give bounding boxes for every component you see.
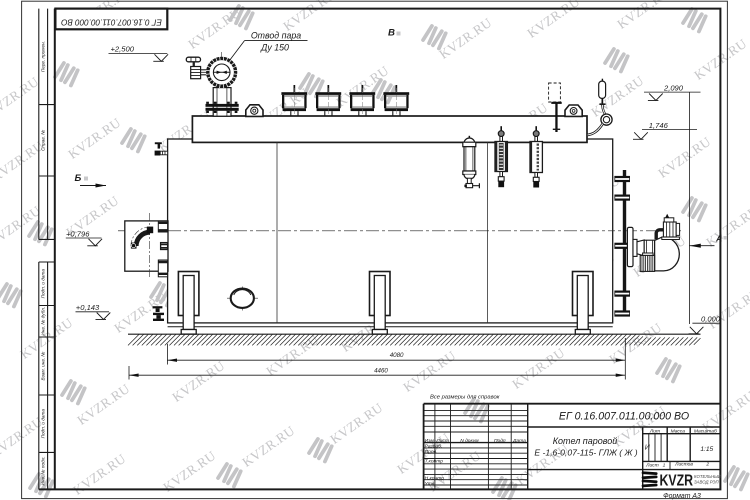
svg-text:Т.контр: Т.контр [425,459,444,465]
svg-text:KVZR.RU: KVZR.RU [655,134,713,181]
svg-text:Утв.: Утв. [425,481,436,487]
svg-text:KVZR.RU: KVZR.RU [524,0,582,41]
svg-text:+0,143: +0,143 [76,303,100,312]
svg-text:2,090: 2,090 [663,83,684,92]
svg-text:Н.контр: Н.контр [425,476,445,482]
svg-text:N докум: N докум [460,438,479,444]
svg-text:KVZR.RU: KVZR.RU [160,448,218,495]
svg-text:Отвод пара: Отвод пара [251,31,301,41]
svg-text:ЗАВОД РЭП: ЗАВОД РЭП [694,480,720,485]
svg-text:Лист: Лист [435,438,449,444]
svg-text:KVZR.RU: KVZR.RU [17,315,75,362]
svg-text:4080: 4080 [390,352,404,359]
svg-text:В: В [388,27,395,38]
svg-text:KVZR.RU: KVZR.RU [327,400,385,447]
svg-text:KVZR.RU: KVZR.RU [614,0,672,32]
svg-text:Изм: Изм [425,438,435,444]
svg-text:KVZR.RU: KVZR.RU [239,423,297,470]
svg-text:KVZR.RU: KVZR.RU [509,345,567,392]
svg-text:KVZR.RU: KVZR.RU [65,115,123,162]
svg-text:Все размеры для справок: Все размеры для справок [430,395,500,401]
svg-text:Инв. № дубл.: Инв. № дубл. [41,307,46,336]
svg-text:Инв. № подл.: Инв. № подл. [41,456,46,485]
svg-text:4460: 4460 [374,367,388,374]
svg-text:Листов: Листов [674,461,693,467]
svg-text:Е -1,6-0,07-115- ГЛЖ ( Ж ): Е -1,6-0,07-115- ГЛЖ ( Ж ) [534,447,637,457]
svg-text:2: 2 [705,461,709,467]
svg-text:Масса: Масса [671,428,686,434]
svg-text:KVZR.RU: KVZR.RU [280,0,338,34]
svg-text:Подп. и дата: Подп. и дата [41,269,46,299]
svg-text:KVZR.RU: KVZR.RU [703,203,750,250]
svg-text:0,000: 0,000 [701,315,721,324]
svg-text:1,746: 1,746 [649,121,669,130]
svg-text:+0,796: +0,796 [66,229,90,238]
svg-text:1:15: 1:15 [700,446,713,453]
svg-text:Лит: Лит [649,428,660,434]
svg-text:KVZR.RU: KVZR.RU [699,388,750,435]
svg-text:Пров.: Пров. [425,449,438,455]
svg-text:Подп: Подп [494,438,506,444]
svg-text:А: А [715,234,722,244]
svg-text:KVZR.RU: KVZR.RU [606,320,664,367]
svg-text:+2,500: +2,500 [111,45,135,54]
svg-text:KVZR.RU: KVZR.RU [0,138,47,185]
svg-text:Взам. инв. №: Взам. инв. № [41,352,46,381]
svg-text:Ду 150: Ду 150 [260,43,289,53]
svg-text:1: 1 [663,462,666,468]
svg-text:ЕГ 0.16.007.011.00.000 ВО: ЕГ 0.16.007.011.00.000 ВО [61,18,162,27]
svg-text:KVZR.RU: KVZR.RU [400,348,458,395]
svg-text:KVZR.RU: KVZR.RU [169,358,227,405]
svg-text:KVZR.RU: KVZR.RU [0,74,42,121]
svg-text:Справ. №: Справ. № [41,130,46,151]
svg-text:КОТЕЛЬНЫЙ: КОТЕЛЬНЫЙ [694,474,722,479]
svg-text:Лист: Лист [645,462,659,468]
svg-text:Котел паровой: Котел паровой [553,436,618,446]
svg-text:Подп. и дата: Подп. и дата [41,409,46,439]
svg-text:Разраб.: Разраб. [425,444,443,450]
svg-text:ЕГ 0.16.007.011.00.000 ВО: ЕГ 0.16.007.011.00.000 ВО [559,410,689,422]
svg-text:KVZR.RU: KVZR.RU [588,73,646,120]
svg-text:И: И [645,444,651,451]
svg-text:KVZR: KVZR [660,472,694,490]
svg-text:Дата: Дата [512,438,526,444]
svg-text:Формат А3: Формат А3 [663,493,701,500]
svg-text:KVZR.RU: KVZR.RU [70,451,128,498]
svg-text:Перв. примен.: Перв. примен. [41,41,46,72]
svg-text:Б: Б [75,173,82,184]
svg-text:Масштаб: Масштаб [694,428,717,434]
